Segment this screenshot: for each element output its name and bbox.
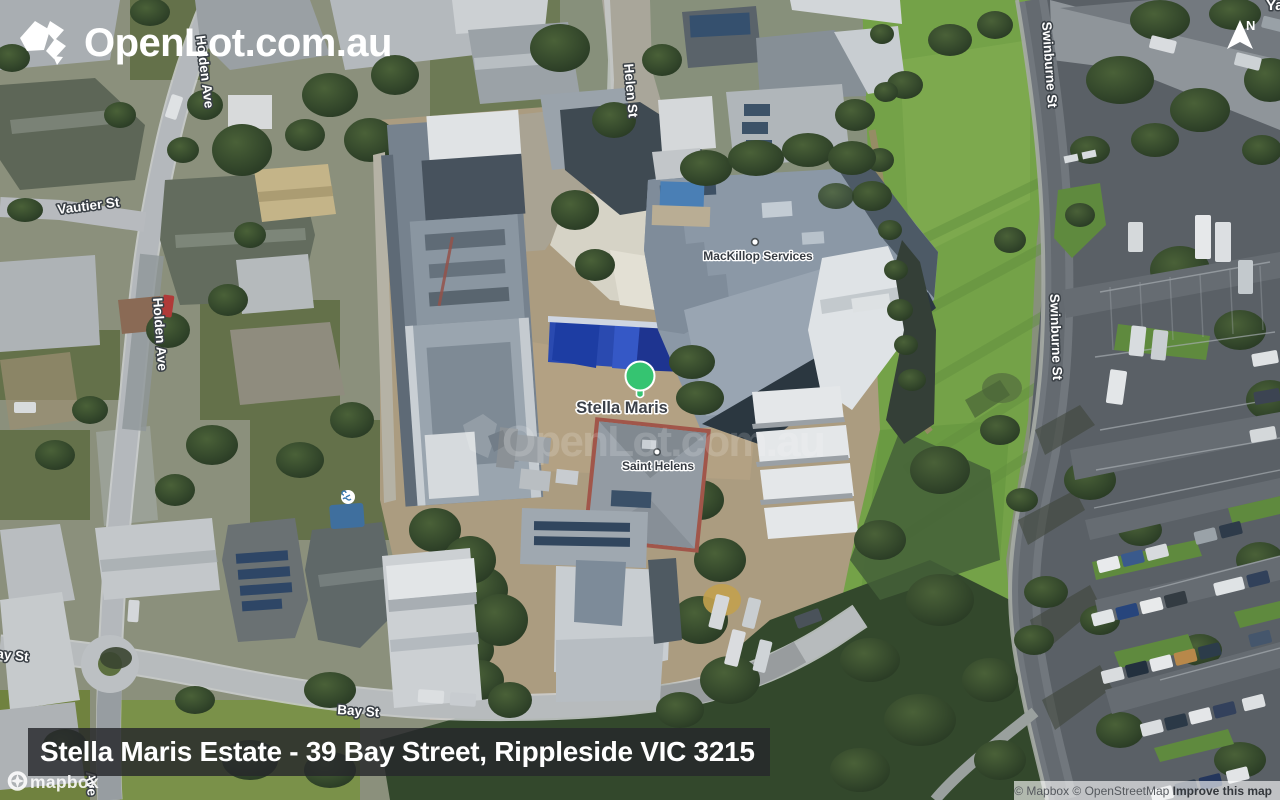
svg-text:mapbox: mapbox: [30, 772, 99, 792]
svg-text:Swinburne St: Swinburne St: [1047, 294, 1065, 381]
svg-text:N: N: [1246, 18, 1255, 33]
svg-text:OpenLot.com.au: OpenLot.com.au: [84, 21, 392, 65]
svg-text:Bay St: Bay St: [337, 702, 380, 720]
svg-text:ay St: ay St: [0, 646, 30, 664]
svg-text:Yac: Yac: [1266, 0, 1280, 14]
svg-text:© Mapbox © OpenStreetMap Impr: © Mapbox © OpenStreetMap Improve this ma…: [1014, 784, 1272, 798]
svg-text:Stella Maris: Stella Maris: [576, 399, 668, 417]
svg-text:MacKillop Services: MacKillop Services: [703, 249, 813, 263]
svg-text:Stella Maris Estate - 39 Bay S: Stella Maris Estate - 39 Bay Street, Rip…: [40, 736, 755, 767]
svg-text:OpenLot.com.au: OpenLot.com.au: [502, 417, 824, 466]
